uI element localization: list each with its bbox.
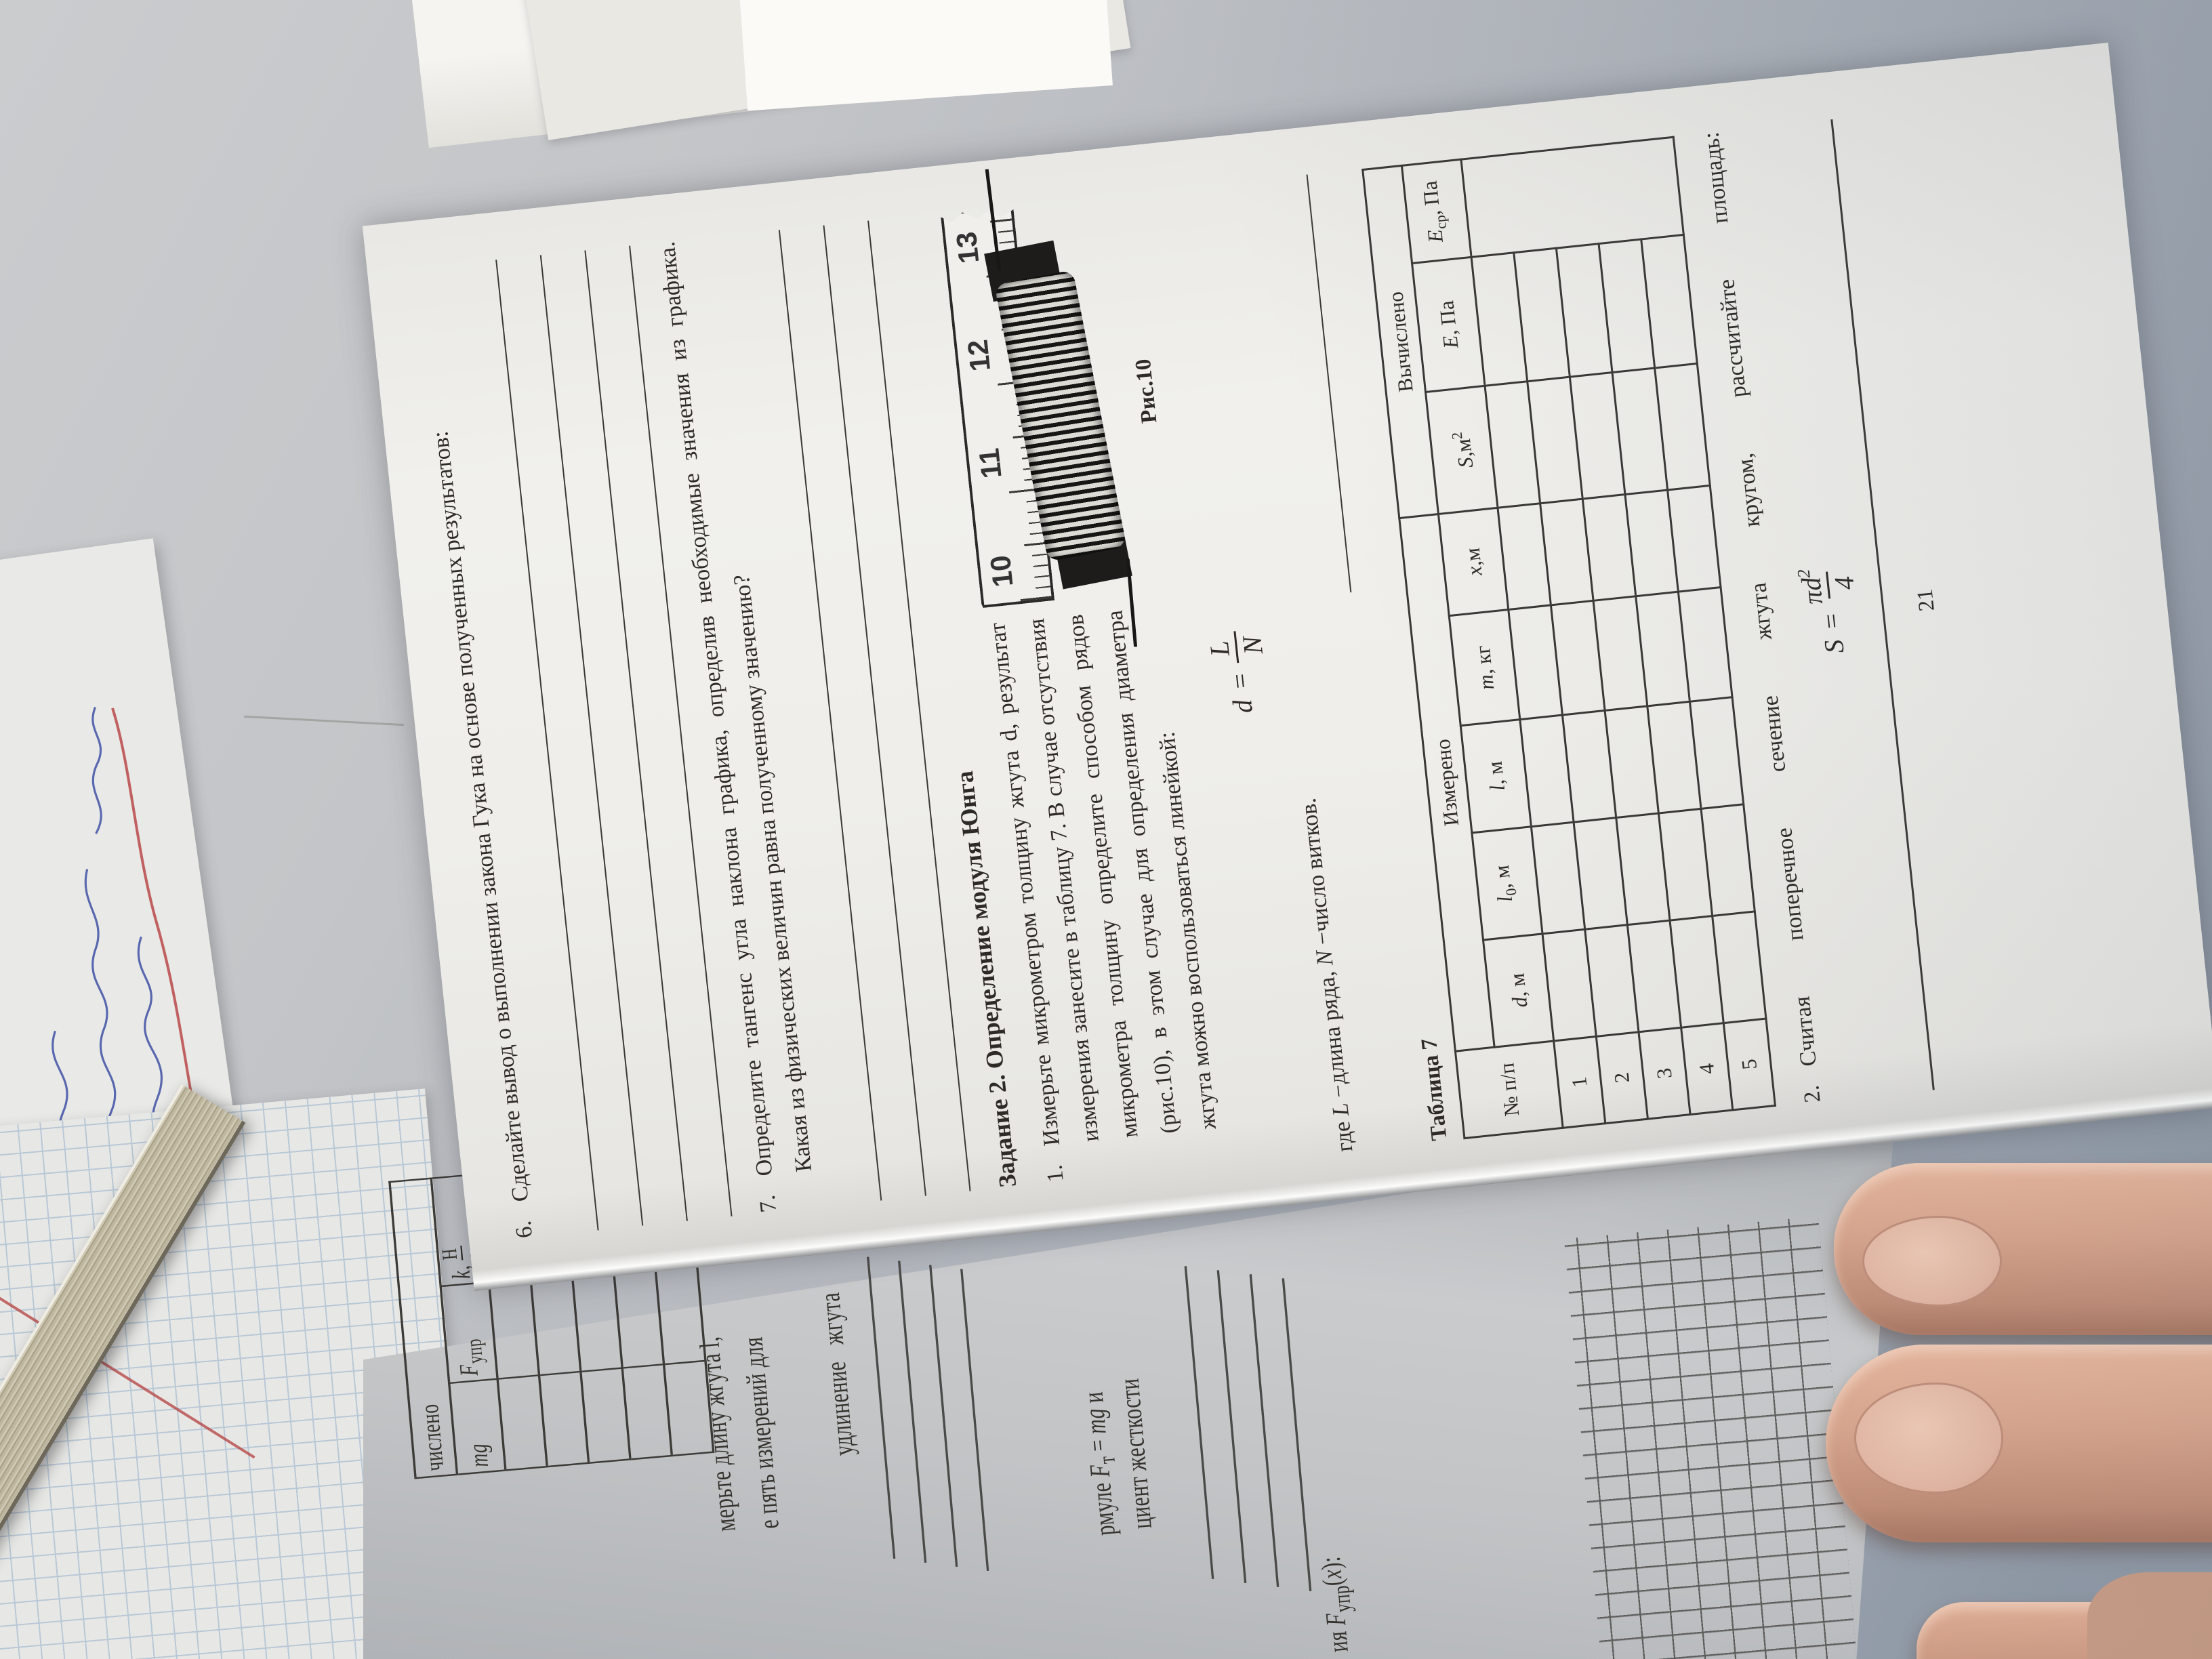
item-1-number: 1. <box>1035 1163 1076 1184</box>
col-mg: mg <box>464 1442 494 1468</box>
item-7-number: 7. <box>748 1193 789 1214</box>
col-header-l0: l0, м <box>1472 827 1542 940</box>
hand <box>2087 1572 2212 1659</box>
ruler-number: 11 <box>968 438 1012 489</box>
ruler-number: 10 <box>980 546 1024 597</box>
col-header-d: d, м <box>1483 934 1554 1047</box>
col-header-l: l, м <box>1460 720 1531 833</box>
col-header-x: x,м <box>1438 508 1508 615</box>
page-21: 6. Сделайте вывод о выполнении закона Гу… <box>363 43 2212 1291</box>
item-1-text: Измерьте микрометром толщину жгута d, ре… <box>985 609 1221 1147</box>
plot-grid <box>1564 1216 1858 1659</box>
col-header-no: № п/п <box>1455 1041 1563 1139</box>
photo-open-physics-workbook: числено mg Fупр k, Нм мерьте длину жгута… <box>0 0 2212 1659</box>
figure-ris-10: 10 11 12 13 Рис.10 <box>935 192 1187 609</box>
item-6-number: 6. <box>504 1218 545 1240</box>
item-2-number: 2. <box>1792 1084 1832 1105</box>
col-header-Esr: Eср, Па <box>1401 159 1471 263</box>
ruler-number: 12 <box>957 330 1001 382</box>
col-header-m: m, кг <box>1449 610 1520 726</box>
row-number: 5 <box>1723 1019 1775 1110</box>
ruler-number: 13 <box>946 222 990 274</box>
